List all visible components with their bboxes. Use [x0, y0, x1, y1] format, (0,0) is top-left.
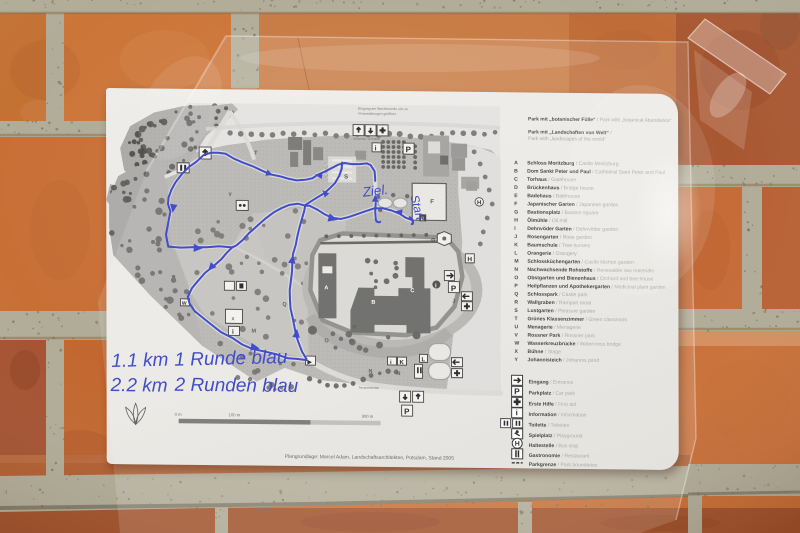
- svg-text:P: P: [406, 145, 412, 154]
- svg-text:2.2 km: 2.2 km: [110, 375, 168, 397]
- svg-text:Menagerie / Menagerie: Menagerie / Menagerie: [527, 324, 581, 331]
- svg-text:▶: ▶: [307, 359, 313, 366]
- svg-text:Schlossküchengarten / Castle k: Schlossküchengarten / Castle kitchen gar…: [527, 259, 634, 266]
- svg-text:Orangerie / Orangery: Orangerie / Orangery: [527, 251, 577, 258]
- svg-text:Q: Q: [282, 302, 287, 308]
- svg-text:N: N: [514, 267, 518, 273]
- svg-text:V: V: [514, 332, 518, 338]
- svg-text:W: W: [514, 341, 519, 347]
- svg-text:Brückenhaus / Bridge house: Brückenhaus / Bridge house: [527, 185, 594, 192]
- svg-text:M: M: [251, 329, 256, 335]
- svg-text:1 Runde blau: 1 Runde blau: [174, 347, 288, 371]
- svg-text:F: F: [514, 201, 517, 207]
- svg-text:Heilpflanzen und Apothekergart: Heilpflanzen und Apothekergarten / Medic…: [527, 283, 665, 290]
- svg-text:P: P: [514, 283, 518, 289]
- svg-text:2 Runden blau: 2 Runden blau: [174, 375, 299, 397]
- svg-text:G: G: [514, 209, 518, 215]
- svg-text:Torhaus / Gatehouse: Torhaus / Gatehouse: [527, 177, 576, 184]
- svg-text:L: L: [514, 250, 517, 256]
- svg-text:C: C: [514, 177, 518, 183]
- svg-text:Badehaus / Bathhouse: Badehaus / Bathhouse: [527, 193, 580, 200]
- svg-text:R: R: [352, 325, 356, 331]
- svg-text:S: S: [514, 308, 518, 314]
- svg-text:N: N: [369, 369, 373, 375]
- svg-text:K: K: [400, 360, 405, 366]
- svg-text:Rossner Park / Rossner park: Rossner Park / Rossner park: [527, 333, 595, 340]
- svg-text:300 m: 300 m: [362, 414, 374, 419]
- svg-text:C: C: [410, 288, 414, 294]
- svg-text:Y: Y: [228, 192, 232, 198]
- svg-text:i: i: [232, 329, 234, 336]
- svg-text:B: B: [514, 168, 518, 174]
- svg-text:J: J: [514, 234, 517, 240]
- svg-text:0 m: 0 m: [175, 412, 183, 417]
- svg-text:Spielplatz / Playground: Spielplatz / Playground: [529, 433, 583, 440]
- svg-text:H: H: [477, 200, 481, 206]
- svg-text:Plangrundlage: Marcel Adam, La: Plangrundlage: Marcel Adam, Landschaftsa…: [285, 454, 454, 462]
- svg-text:P: P: [514, 386, 520, 396]
- svg-text:Schloss Moritzburg / Castle Mo: Schloss Moritzburg / Castle Moritzburg: [527, 160, 619, 167]
- svg-text:T: T: [514, 316, 518, 322]
- svg-text:Rosengarten / Rose garden: Rosengarten / Rose garden: [527, 234, 592, 241]
- svg-text:Dehnvöder Garten / Dehnvöder g: Dehnvöder Garten / Dehnvöder garden: [527, 226, 618, 233]
- svg-text:Ziel.: Ziel.: [361, 182, 389, 200]
- svg-text:P: P: [404, 407, 410, 416]
- svg-text:Y: Y: [515, 357, 519, 363]
- svg-text:Nachwachsende Rohstoffe / Rene: Nachwachsende Rohstoffe / Renewable raw …: [527, 267, 654, 274]
- svg-text:X: X: [515, 349, 519, 355]
- svg-text:Baumschule / Tree nursery: Baumschule / Tree nursery: [527, 242, 591, 249]
- svg-text:A: A: [514, 160, 518, 166]
- svg-text:O: O: [324, 338, 329, 344]
- svg-text:Q: Q: [514, 291, 518, 297]
- svg-text:Eingang am Wochenende von zu: Eingang am Wochenende von zu: [358, 107, 408, 112]
- svg-text:Dom Sankt Peter und Paul / Cat: Dom Sankt Peter und Paul / Cathedral Sai…: [527, 169, 665, 176]
- svg-text:Schlossstr. 12 Parkstr.: Schlossstr. 12 Parkstr.: [353, 137, 381, 141]
- svg-text:Parkplatz / Car park: Parkplatz / Car park: [529, 390, 576, 396]
- svg-text:A: A: [324, 285, 328, 291]
- svg-text:Grünes Klassenzimmer / Green c: Grünes Klassenzimmer / Green classroom: [527, 316, 627, 323]
- svg-text:G: G: [431, 237, 435, 243]
- svg-text:Seepromenade: Seepromenade: [359, 386, 380, 390]
- svg-text:i: i: [375, 145, 377, 152]
- svg-text:Johannisteich / Johannis pond: Johannisteich / Johannis pond: [528, 357, 600, 364]
- svg-text:Eingang / Entrance: Eingang / Entrance: [529, 379, 574, 385]
- svg-text:Parkgrenze / Park boundaries: Parkgrenze / Park boundaries: [529, 462, 598, 469]
- svg-text:Bühne / Stage: Bühne / Stage: [528, 349, 562, 355]
- svg-text:Wasserkreuzbrücke / Watercross: Wasserkreuzbrücke / Watercross bridge: [527, 341, 621, 348]
- svg-text:R: R: [514, 300, 518, 306]
- svg-text:Park with „landscapes of the w: Park with „landscapes of the world“: [528, 136, 606, 143]
- svg-text:I: I: [514, 226, 516, 232]
- svg-text:Haltestelle / Bus stop: Haltestelle / Bus stop: [529, 443, 579, 450]
- svg-text:Wallgraben / Rampart moat: Wallgraben / Rampart moat: [527, 300, 591, 307]
- svg-text:M: M: [514, 259, 518, 265]
- svg-text:Information / Information: Information / Information: [529, 412, 587, 419]
- svg-text:L: L: [422, 357, 426, 363]
- svg-text:S: S: [344, 174, 348, 180]
- svg-text:U: U: [514, 324, 518, 330]
- svg-text:P: P: [451, 284, 457, 293]
- svg-text:H: H: [514, 218, 518, 224]
- svg-text:O: O: [514, 275, 518, 281]
- svg-text:Schlosspark / Castle park: Schlosspark / Castle park: [527, 292, 588, 299]
- svg-text:100 m: 100 m: [229, 412, 241, 417]
- svg-text:E: E: [514, 193, 518, 199]
- svg-text:Lustgarten / Pleasure garden: Lustgarten / Pleasure garden: [527, 308, 595, 315]
- svg-text:K: K: [514, 242, 518, 248]
- svg-text:Park mit „botanischer Fülle“ /: Park mit „botanischer Fülle“ / Park with…: [528, 116, 672, 124]
- svg-text:Obstgarten und Bienenhaus / Or: Obstgarten und Bienenhaus / Orchard and …: [527, 275, 653, 282]
- svg-text:Japanischer Garten / Japanese: Japanischer Garten / Japanese garden: [527, 201, 618, 208]
- svg-text:B: B: [371, 300, 375, 306]
- svg-text:1.1 km: 1.1 km: [111, 350, 169, 372]
- svg-text:Bastionsplatz / Bastion square: Bastionsplatz / Bastion square: [527, 210, 599, 217]
- svg-text:Toilette / Toilettes: Toilette / Toilettes: [529, 422, 570, 428]
- svg-text:W: W: [182, 301, 187, 307]
- svg-text:i: i: [516, 408, 518, 417]
- svg-text:Veranstaltungen geöffnet: Veranstaltungen geöffnet: [358, 112, 396, 116]
- svg-text:x: x: [231, 316, 234, 322]
- svg-text:H: H: [467, 256, 472, 263]
- svg-text:Ölmühle / Oil mill: Ölmühle / Oil mill: [527, 217, 567, 224]
- svg-text:Erste Hilfe / First aid: Erste Hilfe / First aid: [529, 401, 577, 408]
- svg-text:Gastronomie / Restaurant: Gastronomie / Restaurant: [529, 453, 590, 460]
- svg-text:F: F: [430, 199, 434, 205]
- svg-text:N: N: [397, 371, 401, 377]
- svg-text:J: J: [452, 299, 455, 305]
- svg-text:H: H: [515, 441, 520, 448]
- svg-text:D: D: [514, 185, 518, 191]
